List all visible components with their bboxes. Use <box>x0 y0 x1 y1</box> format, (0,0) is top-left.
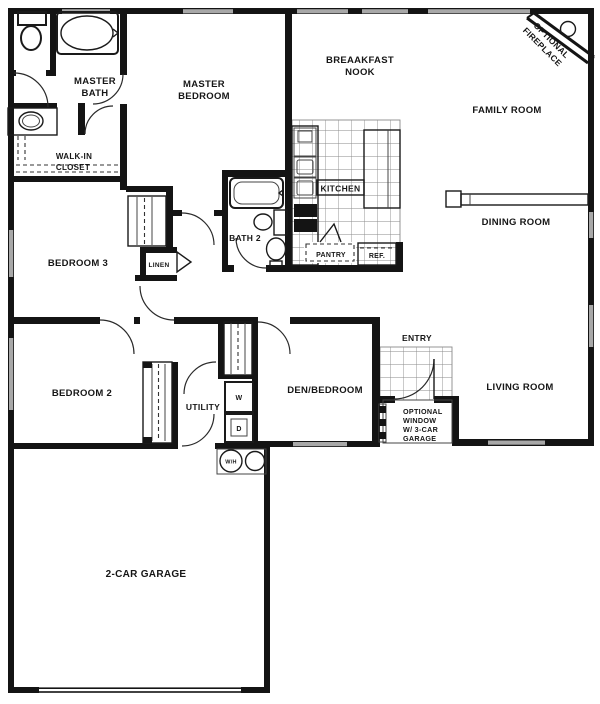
label-optional-window-2: WINDOW <box>403 416 436 425</box>
label-linen: LINEN <box>149 262 170 269</box>
water-heater-label: W/H <box>225 460 237 466</box>
window-master-bedroom <box>183 9 233 13</box>
window-living-front <box>488 441 545 445</box>
label-optional-window-4: GARAGE <box>403 434 436 443</box>
label-optional-window-1: OPTIONAL <box>403 407 443 416</box>
half-wall-shelf <box>461 194 588 205</box>
label-family-room: FAMILY ROOM <box>472 105 541 116</box>
vanity-sink-basin <box>23 115 40 127</box>
window-bedroom-2 <box>9 338 13 410</box>
garage-door-line-outer <box>39 687 241 689</box>
checker-mark <box>379 406 386 413</box>
master-tub-basin <box>61 16 113 50</box>
bedroom-3-closet <box>128 196 166 246</box>
closet-end-cap <box>143 362 152 368</box>
vanity-door-arc <box>85 106 113 134</box>
label-walk-in-closet-2: CLOSET <box>56 163 90 172</box>
label-bedroom-2: BEDROOM 2 <box>52 388 112 399</box>
label-garage: 2-CAR GARAGE <box>106 569 187 580</box>
stove-burner-row-2 <box>294 219 317 232</box>
label-bath-2: BATH 2 <box>229 233 261 243</box>
label-utility: UTILITY <box>186 402 220 412</box>
label-entry: ENTRY <box>402 333 432 343</box>
label-den-bedroom: DEN/BEDROOM <box>287 385 363 396</box>
window-living-room <box>589 305 593 347</box>
window-dining-room <box>589 212 593 238</box>
bath-2-fixtures <box>230 178 287 266</box>
linen-door <box>177 252 191 272</box>
master-bedroom-door-arc <box>182 213 214 245</box>
garage-entry-door-arc <box>182 414 214 446</box>
floor-plan-svg: W D W/H MASTER BATH WALK-IN CLOSET MA <box>0 0 600 704</box>
toilet-bowl <box>21 26 41 50</box>
bath-2-toilet-bowl <box>267 238 286 260</box>
window-bedroom-3 <box>9 230 13 277</box>
toilet-room-door-arc <box>14 73 48 107</box>
label-optional-window-3: W/ 3-CAR <box>403 425 439 434</box>
room-labels: MASTER BATH WALK-IN CLOSET MASTER BEDROO… <box>48 18 572 580</box>
garage-door-line-inner <box>39 691 241 693</box>
bedroom-2-door-arc <box>100 320 134 354</box>
den-door-arc <box>258 322 290 354</box>
softener-circle <box>246 452 265 471</box>
label-kitchen: KITCHEN <box>321 184 361 194</box>
closet-end-cap <box>143 437 152 443</box>
half-wall-post <box>446 191 461 207</box>
bath-2-sink <box>254 214 272 230</box>
label-master-bath-1: MASTER <box>74 76 116 87</box>
stove-burner-row-1 <box>294 204 317 217</box>
label-bedroom-3: BEDROOM 3 <box>48 258 108 269</box>
label-master-bedroom-2: BEDROOM <box>178 91 230 102</box>
water-heater-nook: W/H <box>217 449 266 474</box>
master-tub <box>57 12 118 54</box>
washer-label: W <box>236 395 243 402</box>
label-pantry: PANTRY <box>316 252 346 259</box>
window-family-room <box>428 9 530 13</box>
label-refrigerator: REF. <box>369 253 385 260</box>
bath-2-tub-basin <box>234 182 279 204</box>
label-walk-in-closet-1: WALK-IN <box>56 152 92 161</box>
dryer-label: D <box>236 426 241 433</box>
label-master-bath-2: BATH <box>82 88 109 99</box>
utility-door-arc <box>184 362 216 394</box>
window-den <box>293 442 347 446</box>
garage-door <box>39 687 241 692</box>
label-master-bedroom-1: MASTER <box>183 79 225 90</box>
bedroom-3-door-arc <box>140 286 174 320</box>
laundry-appliances: W D <box>225 382 253 442</box>
checker-mark <box>379 432 386 439</box>
label-breakfast-nook-1: BREAAKFAST <box>326 55 394 66</box>
dining-half-wall <box>446 191 588 207</box>
bedroom-2-closet <box>143 362 172 443</box>
master-bath-fixtures <box>8 12 118 135</box>
checker-mark <box>379 419 386 426</box>
window-nook-2 <box>362 9 408 13</box>
floor-plan-page: W D W/H MASTER BATH WALK-IN CLOSET MA <box>0 0 600 704</box>
label-breakfast-nook-2: NOOK <box>345 67 375 78</box>
label-optional-fireplace: OPTIONAL FIREPLACE <box>521 18 572 69</box>
label-dining-room: DINING ROOM <box>482 217 551 228</box>
window-nook-1 <box>297 9 348 13</box>
fireplace-flue-circle <box>561 22 576 37</box>
label-living-room: LIVING ROOM <box>486 382 553 393</box>
